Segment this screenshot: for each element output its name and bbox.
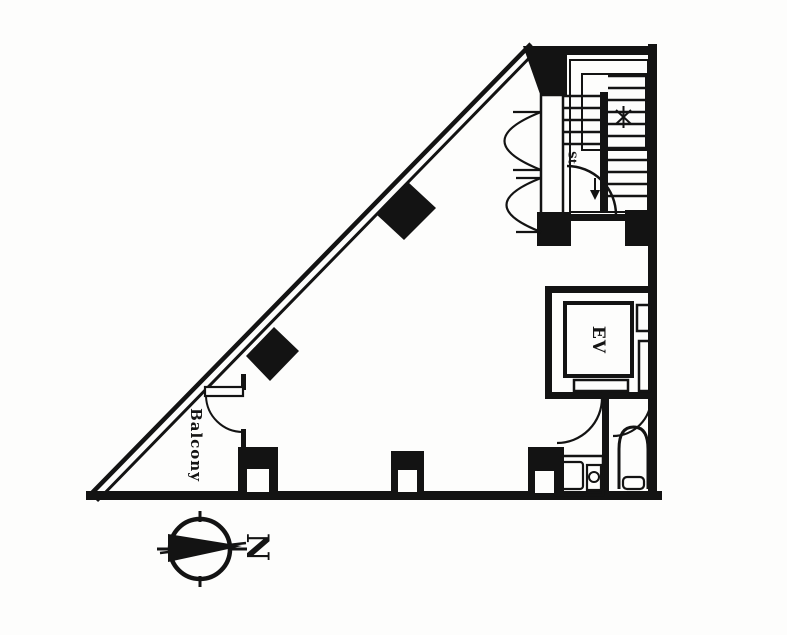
- toilet-door-arc: [613, 398, 651, 436]
- elevator-label: EV: [587, 320, 609, 360]
- diagonal-columns: [246, 182, 436, 381]
- balcony-door-leaf: [205, 387, 243, 396]
- balcony-label: Balcony: [185, 401, 207, 489]
- wc-door-arc: [557, 398, 602, 443]
- compass-north-label: N: [240, 530, 274, 564]
- floor-plan-page: Balcony EV St N: [0, 0, 787, 635]
- hypotenuse-wall: [89, 44, 537, 501]
- staircase: [523, 46, 657, 246]
- washrooms: [528, 392, 651, 497]
- balcony-door-arc: [206, 396, 243, 432]
- column: [537, 212, 571, 246]
- corner-column: [523, 46, 567, 97]
- bottom-columns: [238, 447, 424, 495]
- right-wall: [648, 44, 657, 500]
- stair-divider: [600, 92, 608, 212]
- compass: [157, 511, 247, 587]
- stair-left-wall: [541, 95, 563, 215]
- elevator-sill: [574, 380, 628, 391]
- stair-treads-right: [608, 76, 648, 196]
- column: [246, 327, 299, 381]
- stair-label: St: [565, 142, 580, 174]
- toilet: [619, 427, 648, 489]
- column: [625, 210, 657, 246]
- lobby-doors: [505, 112, 542, 232]
- outer-walls: [86, 44, 662, 501]
- floor-plan-drawing: [0, 0, 787, 635]
- top-wall: [552, 46, 657, 55]
